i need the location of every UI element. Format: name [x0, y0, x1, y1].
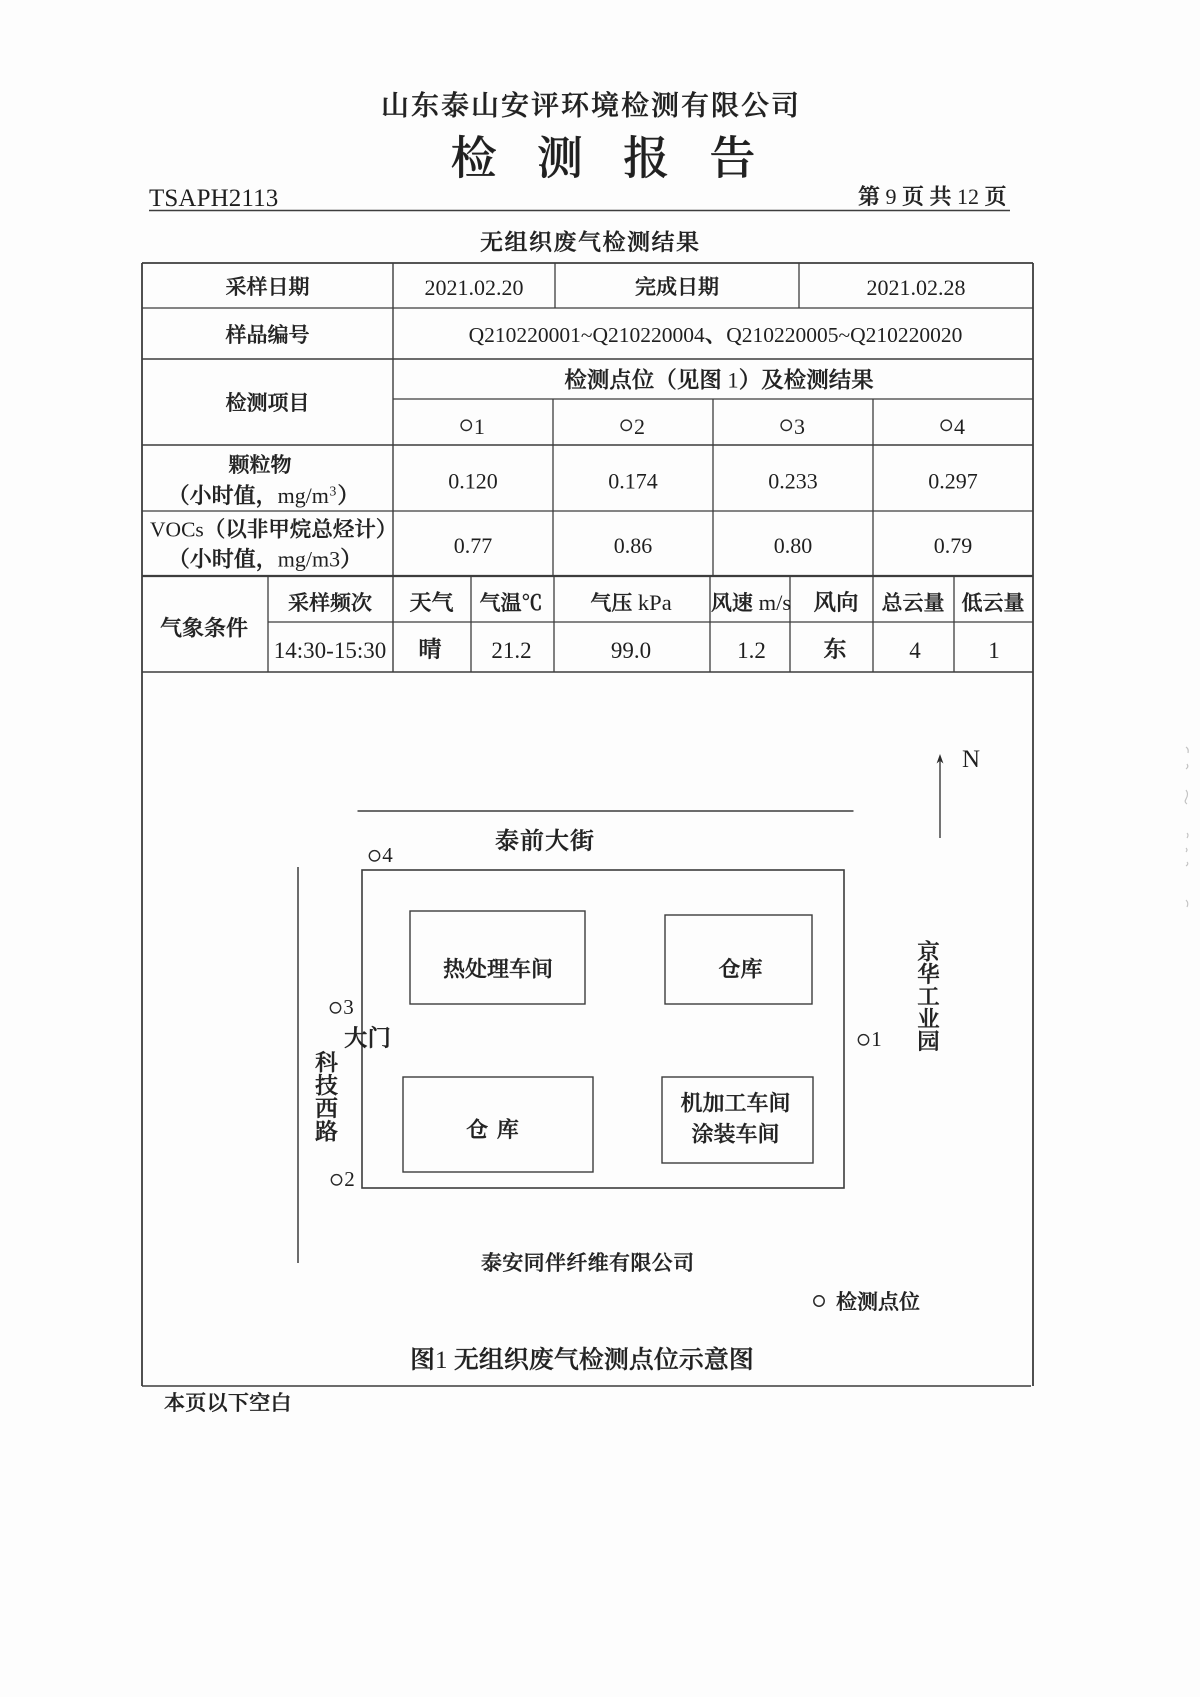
svg-text:0.233: 0.233 — [768, 469, 818, 494]
svg-text:14:30-15:30: 14:30-15:30 — [274, 638, 386, 663]
svg-text:1: 1 — [871, 1027, 882, 1051]
svg-text:2021.02.28: 2021.02.28 — [867, 275, 966, 300]
svg-text:9: 9 — [886, 184, 897, 209]
svg-text:0.86: 0.86 — [614, 533, 653, 558]
svg-text:3: 3 — [794, 414, 805, 439]
svg-text:4: 4 — [954, 414, 965, 439]
svg-text:0.297: 0.297 — [928, 469, 978, 494]
svg-text:2: 2 — [344, 1167, 355, 1191]
svg-text:3: 3 — [329, 485, 336, 500]
svg-text:0.77: 0.77 — [454, 533, 493, 558]
svg-text:4: 4 — [909, 638, 921, 663]
svg-text:kPa: kPa — [638, 590, 672, 615]
svg-text:VOCs: VOCs — [150, 518, 204, 542]
svg-text:3: 3 — [343, 995, 354, 1019]
svg-text:m/s: m/s — [759, 590, 792, 615]
svg-text:1.2: 1.2 — [737, 638, 766, 663]
svg-text:0.120: 0.120 — [448, 469, 498, 494]
svg-text:0.79: 0.79 — [934, 533, 973, 558]
svg-text:2: 2 — [634, 414, 645, 439]
svg-text:N: N — [962, 746, 980, 773]
svg-text:TSAPH2113: TSAPH2113 — [149, 185, 278, 212]
svg-text:1: 1 — [474, 414, 485, 439]
svg-text:Q210220001~Q210220004: Q210220001~Q210220004 — [469, 323, 705, 347]
svg-text:1: 1 — [435, 1347, 448, 1374]
svg-text:0.174: 0.174 — [608, 469, 658, 494]
svg-text:2021.02.20: 2021.02.20 — [425, 275, 524, 300]
svg-text:21.2: 21.2 — [491, 638, 531, 663]
svg-text:4: 4 — [382, 843, 393, 867]
svg-text:99.0: 99.0 — [611, 638, 651, 663]
svg-text:mg/m: mg/m — [278, 483, 329, 508]
svg-text:mg/m3: mg/m3 — [278, 547, 340, 572]
svg-text:1: 1 — [988, 638, 1000, 663]
svg-text:Q210220005~Q210220020: Q210220005~Q210220020 — [726, 323, 962, 347]
svg-text:1: 1 — [727, 368, 738, 393]
svg-text:0.80: 0.80 — [774, 533, 813, 558]
svg-text:12: 12 — [957, 184, 979, 209]
